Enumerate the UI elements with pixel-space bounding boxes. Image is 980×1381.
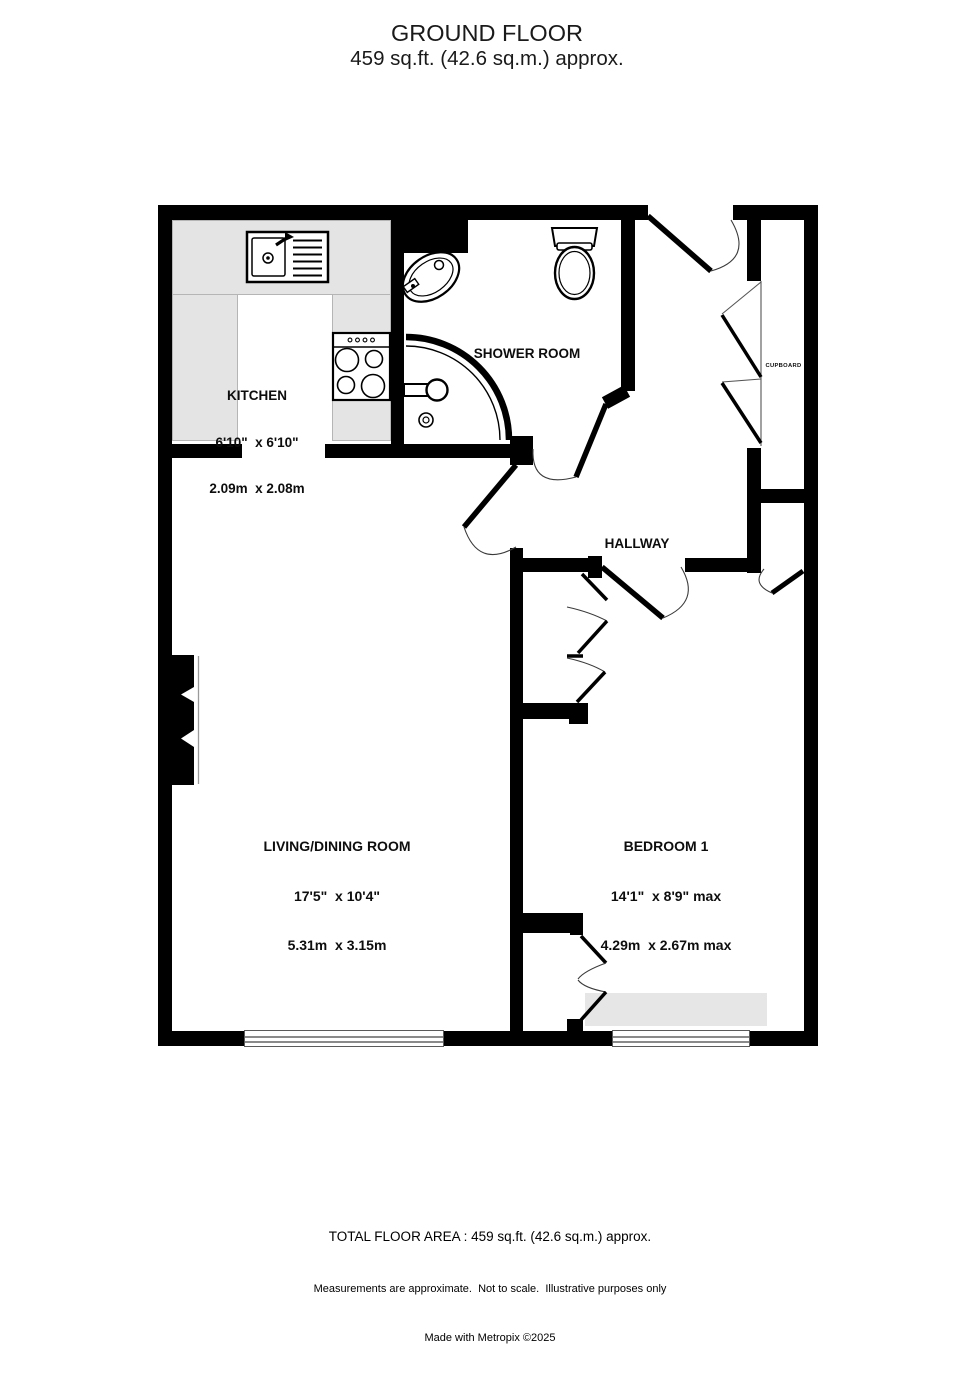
floor-area-subtitle: 459 sq.ft. (42.6 sq.m.) approx. xyxy=(0,46,974,71)
front-door-icon xyxy=(648,216,739,271)
living-dining-label: LIVING/DINING ROOM 17'5" x 10'4" 5.31m x… xyxy=(217,805,457,987)
kitchen-label: KITCHEN 6'10" x 6'10" 2.09m x 2.08m xyxy=(166,357,348,528)
credit-text: Made with Metropix ©2025 xyxy=(0,1332,980,1345)
toilet-icon xyxy=(552,228,597,299)
shower-door-icon xyxy=(533,391,627,480)
bedroom1-label: BEDROOM 1 14'1" x 8'9" max 4.29m x 2.67m… xyxy=(546,805,786,987)
room-dims-imperial: 14'1" x 8'9" max xyxy=(546,888,786,905)
floor-title: GROUND FLOOR xyxy=(0,20,974,46)
room-dims-metric: 5.31m x 3.15m xyxy=(217,937,457,954)
hallway-label: HALLWAY xyxy=(537,506,737,581)
room-name: BEDROOM 1 xyxy=(546,838,786,855)
kitchen-sink-icon xyxy=(247,232,328,282)
plan-symbols xyxy=(0,0,980,1273)
room-dims-metric: 2.09m x 2.08m xyxy=(166,481,348,497)
living-room-door-icon xyxy=(464,465,516,555)
total-floor-area: TOTAL FLOOR AREA : 459 sq.ft. (42.6 sq.m… xyxy=(0,1228,980,1245)
cupboard-bifold-doors-icon xyxy=(722,281,761,446)
room-dims-imperial: 17'5" x 10'4" xyxy=(217,888,457,905)
disclaimer-text: Measurements are approximate. Not to sca… xyxy=(0,1283,980,1296)
shower-room-label: SHOWER ROOM xyxy=(427,316,627,391)
basin-icon xyxy=(394,242,469,312)
chimney-breast-icon xyxy=(172,655,199,785)
room-dims-imperial: 6'10" x 6'10" xyxy=(166,435,348,451)
room-name: SHOWER ROOM xyxy=(427,346,627,361)
wardrobe1-doors-icon xyxy=(567,574,607,702)
room-name: CUPBOARD xyxy=(760,363,807,369)
room-dims-metric: 4.29m x 2.67m max xyxy=(546,937,786,954)
alcove-door-icon xyxy=(759,569,803,593)
page-title: GROUND FLOOR 459 sq.ft. (42.6 sq.m.) app… xyxy=(0,20,974,71)
room-name: HALLWAY xyxy=(537,536,737,551)
cupboard-label: CUPBOARD xyxy=(760,351,807,381)
room-name: KITCHEN xyxy=(166,388,348,404)
floorplan: GROUND FLOOR 459 sq.ft. (42.6 sq.m.) app… xyxy=(0,0,980,1273)
plan-footer: TOTAL FLOOR AREA : 459 sq.ft. (42.6 sq.m… xyxy=(0,1192,980,1381)
room-name: LIVING/DINING ROOM xyxy=(217,838,457,855)
